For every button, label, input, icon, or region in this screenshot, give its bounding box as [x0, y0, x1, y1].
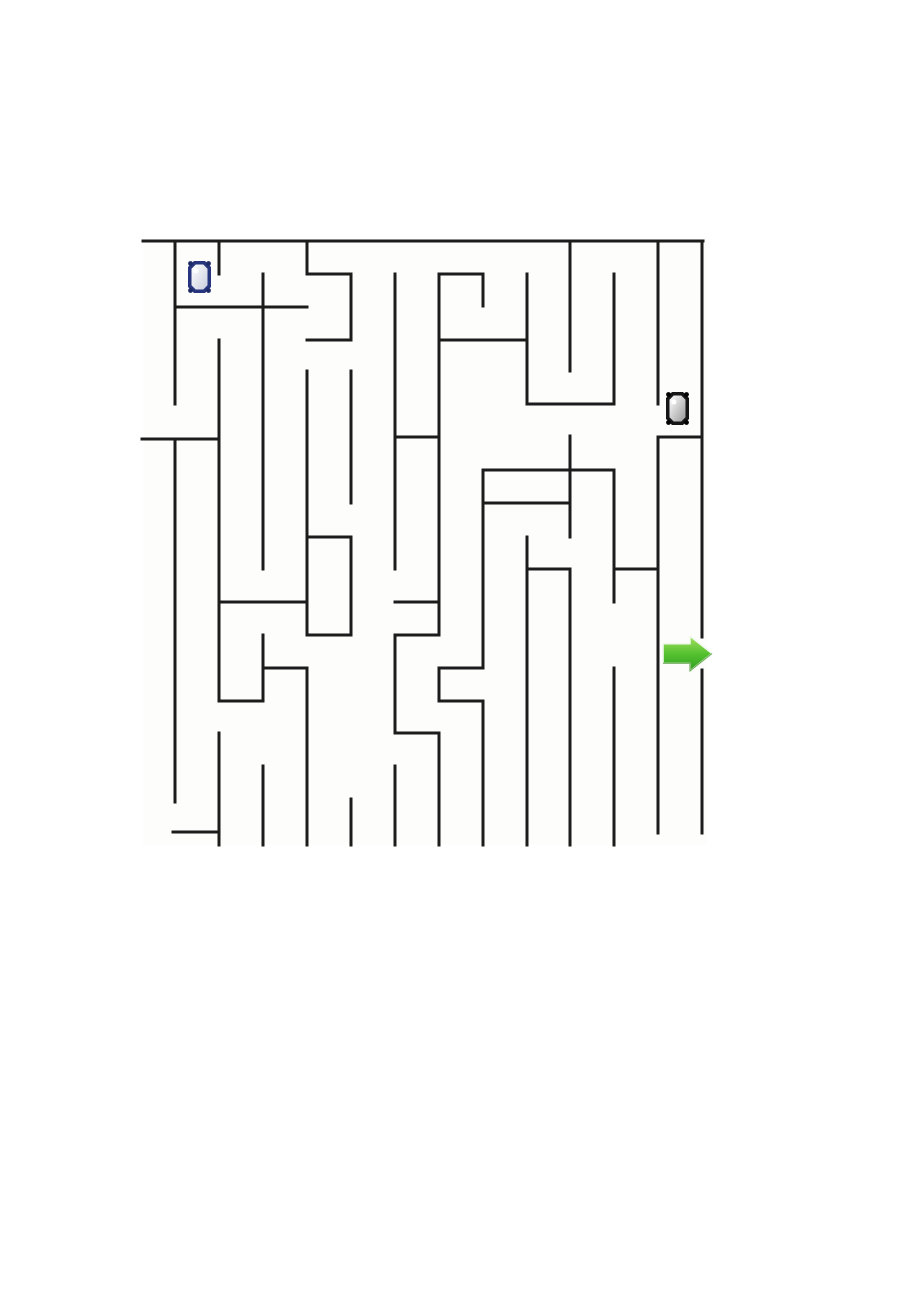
black-gem-icon — [666, 392, 689, 425]
maze-image — [0, 0, 920, 1301]
blue-gem-icon — [188, 261, 211, 293]
maze-page — [0, 0, 920, 1301]
maze-paper-background — [143, 238, 707, 845]
